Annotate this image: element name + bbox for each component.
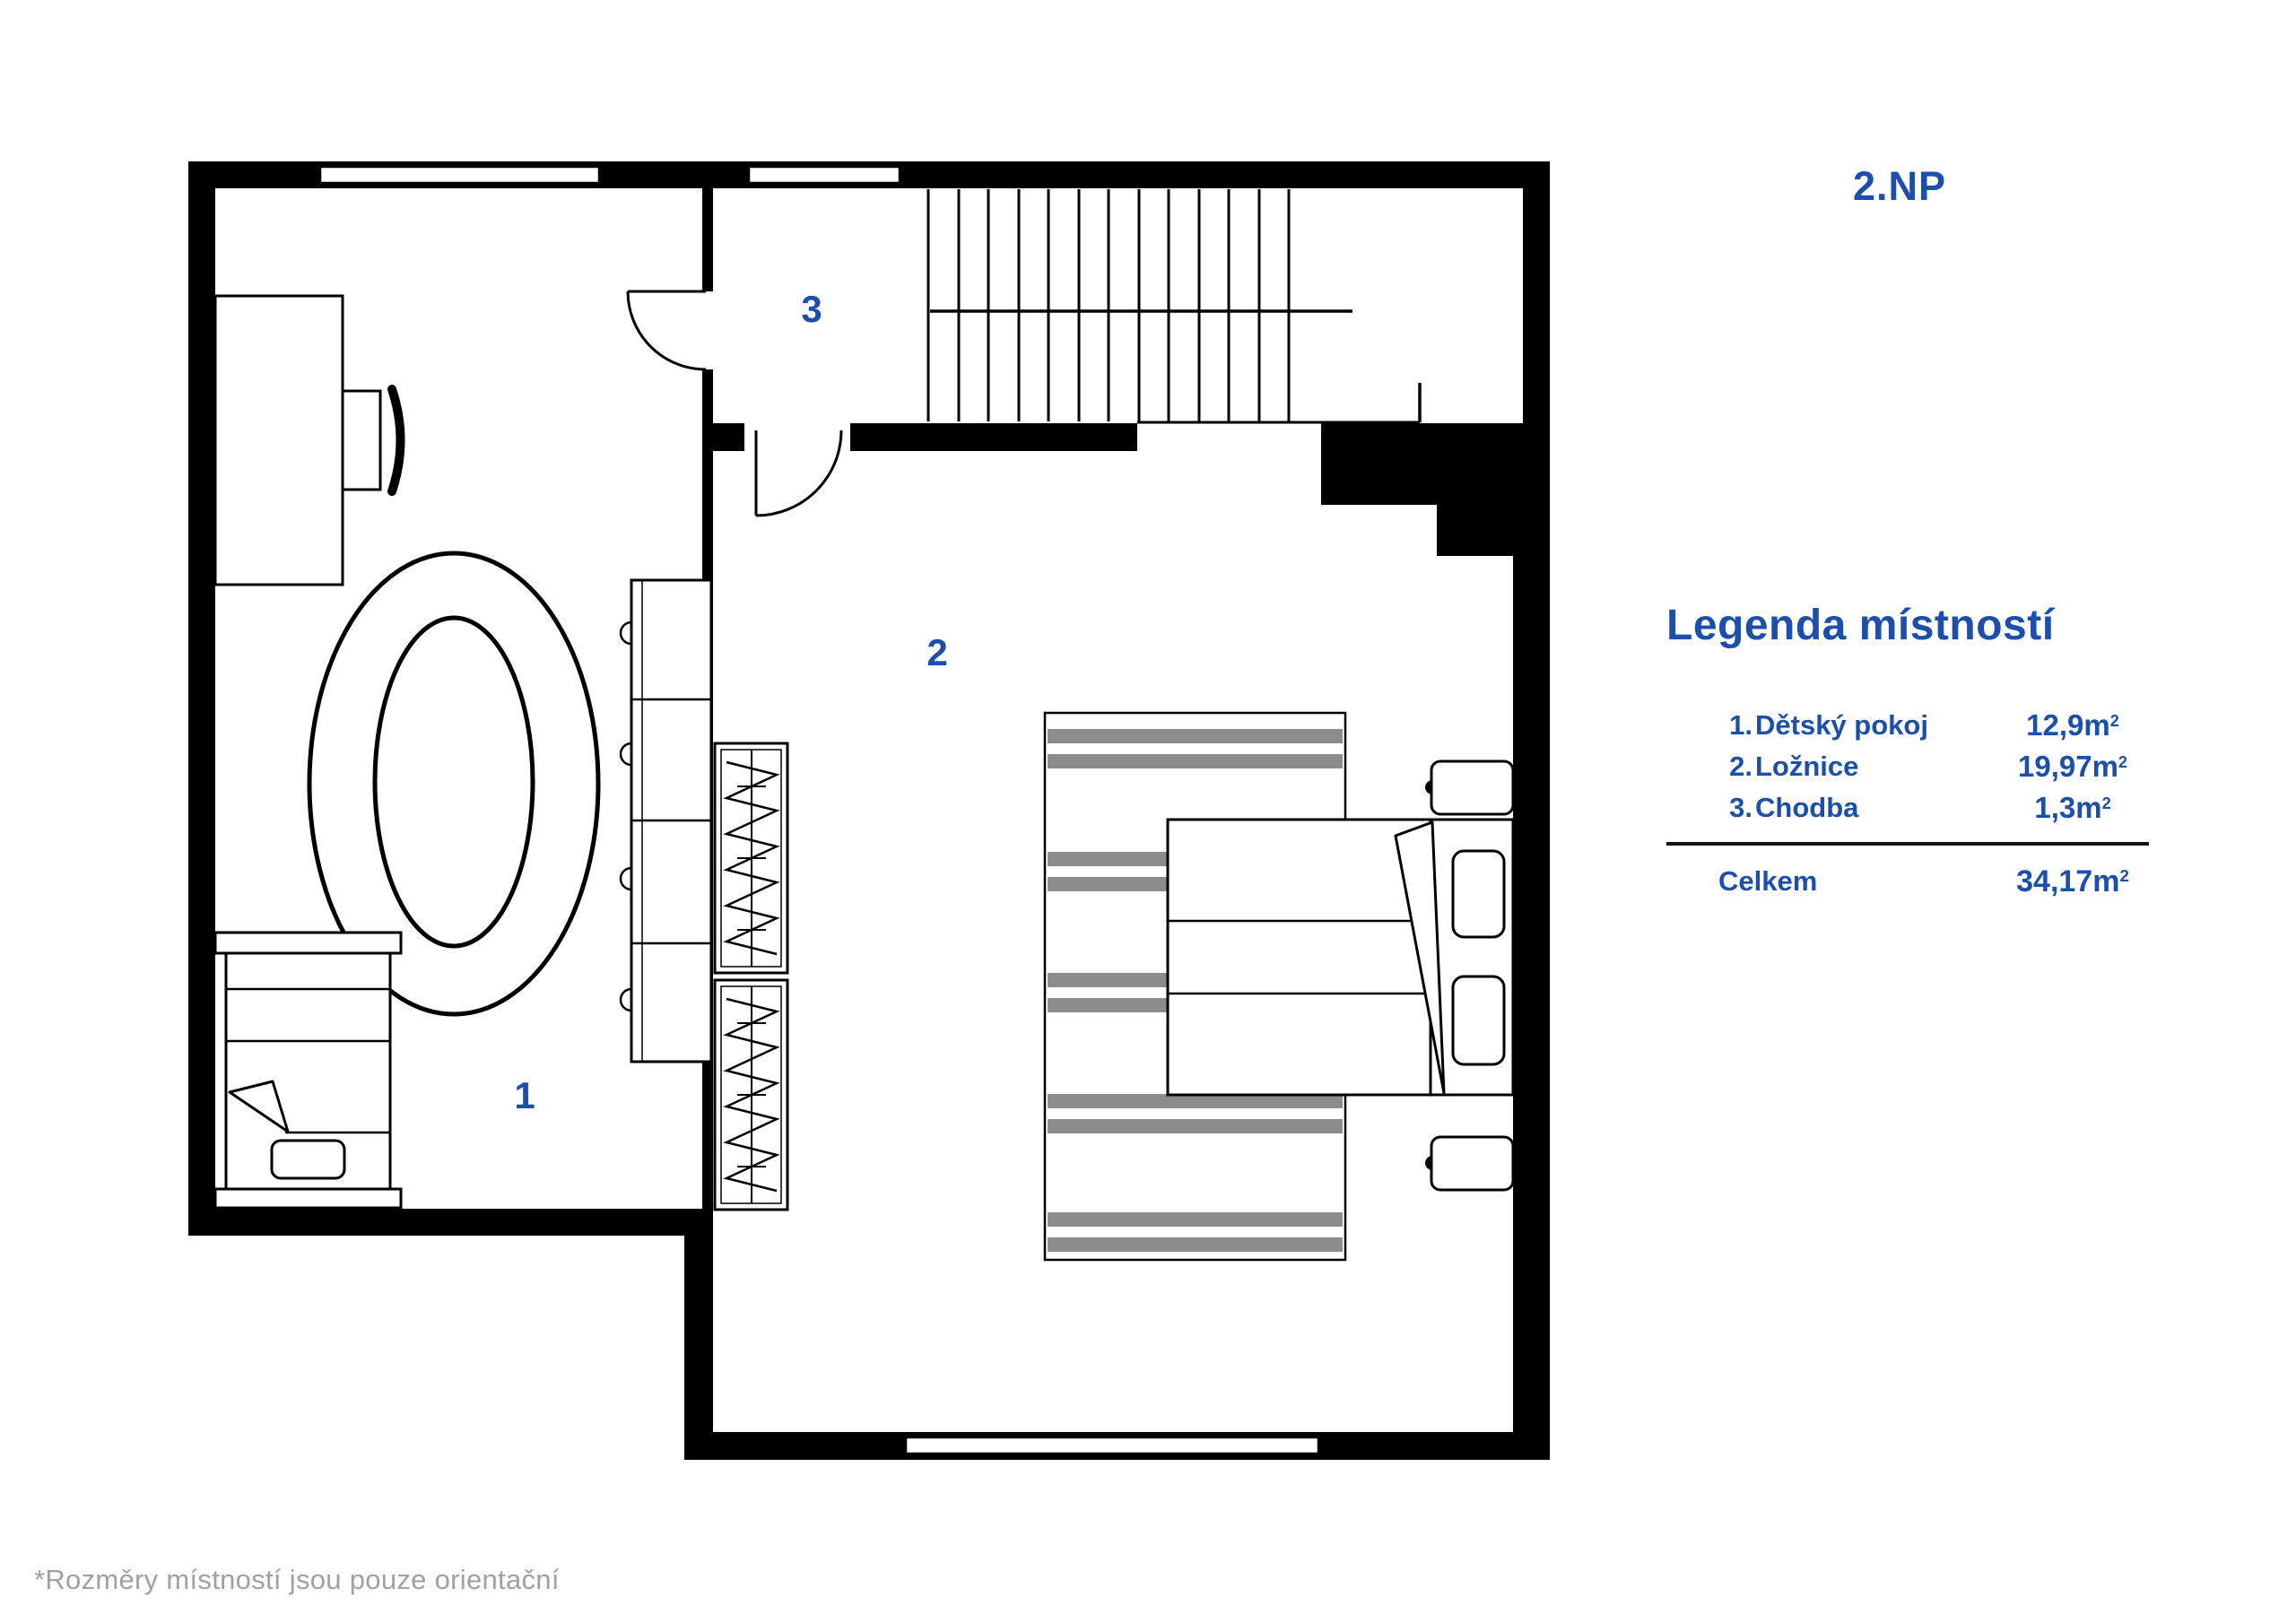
legend-total-row: Celkem 34,17m2 [1666, 861, 2149, 902]
desk-chair-seat [343, 391, 380, 490]
legend-divider [1666, 842, 2149, 846]
window-hall-top [749, 167, 900, 183]
single-bed [215, 933, 401, 1208]
legend-item-area: 12,9m2 [1996, 708, 2149, 742]
double-bed-blanket [1168, 820, 1431, 1095]
wall-step-block-a [1321, 423, 1550, 505]
wall-right-lower [1513, 556, 1550, 1432]
single-bed-headboard [215, 933, 401, 953]
desk-chair-back [392, 389, 401, 491]
floor-title: 2.NP [1853, 163, 1946, 210]
door-swing-room1 [628, 291, 706, 369]
single-bed-pillow [272, 1141, 344, 1178]
room1-furniture [215, 296, 711, 1208]
footnote: *Rozměry místností jsou pouze orientační [34, 1564, 560, 1596]
wardrobe-upper [715, 743, 787, 973]
single-bed-footboard [215, 1189, 401, 1208]
wall-hall-bottom-left [713, 423, 744, 451]
double-bed-pillow-bottom [1453, 976, 1504, 1064]
wardrobe-lower [715, 980, 787, 1210]
oval-rug-inner [375, 618, 533, 946]
legend-title: Legenda místností [1666, 597, 2149, 655]
legend-item-1: 1. Dětský pokoj 12,9m2 [1666, 705, 2149, 746]
room2-furniture [715, 713, 1513, 1260]
nightstand-knob [1425, 780, 1432, 794]
legend-item-number: 2. [1718, 751, 1752, 783]
wall-room2-left [684, 1209, 713, 1432]
nightstand-bottom [1425, 1137, 1513, 1190]
double-bed-pillow-top [1453, 851, 1504, 937]
staircase [928, 189, 1420, 422]
legend-item-number: 1. [1718, 709, 1752, 742]
legend-total-area: 34,17m2 [1996, 864, 2149, 899]
nightstand-top [1425, 761, 1513, 814]
wall-left [188, 188, 215, 1236]
legend-item-name: Ložnice [1755, 751, 1858, 783]
nightstand-knob [1425, 1156, 1432, 1170]
wall-hall-bottom-right [850, 423, 1137, 451]
room-legend: Legenda místností 1. Dětský pokoj 12,9m2… [1666, 597, 2149, 902]
legend-item-number: 3. [1718, 792, 1752, 824]
room-label-1: 1 [514, 1074, 535, 1116]
double-bed [1168, 820, 1513, 1095]
floor-plan-page: 1 2 3 2.NP Legenda místností 1. Dětský p… [0, 0, 2296, 1623]
legend-item-name: Chodba [1755, 792, 1858, 824]
shelf-unit [621, 580, 711, 1062]
wall-right-upper [1523, 188, 1550, 423]
wall-room1-bottom [188, 1209, 713, 1236]
room-label-3: 3 [801, 288, 822, 330]
door-swing-room2 [756, 430, 841, 516]
legend-item-2: 2. Ložnice 19,97m2 [1666, 746, 2149, 787]
wall-partition-upper [702, 188, 713, 291]
window-room1-top [320, 167, 599, 183]
legend-item-3: 3. Chodba 1,3m2 [1666, 787, 2149, 829]
window-room2-bottom [906, 1437, 1318, 1454]
wall-step-block-b [1437, 505, 1550, 556]
legend-total-label: Celkem [1718, 865, 1817, 898]
legend-item-area: 19,97m2 [1996, 750, 2149, 784]
room-label-2: 2 [926, 631, 947, 673]
desk [215, 296, 343, 585]
legend-item-area: 1,3m2 [1996, 791, 2149, 825]
legend-item-name: Dětský pokoj [1755, 709, 1928, 742]
